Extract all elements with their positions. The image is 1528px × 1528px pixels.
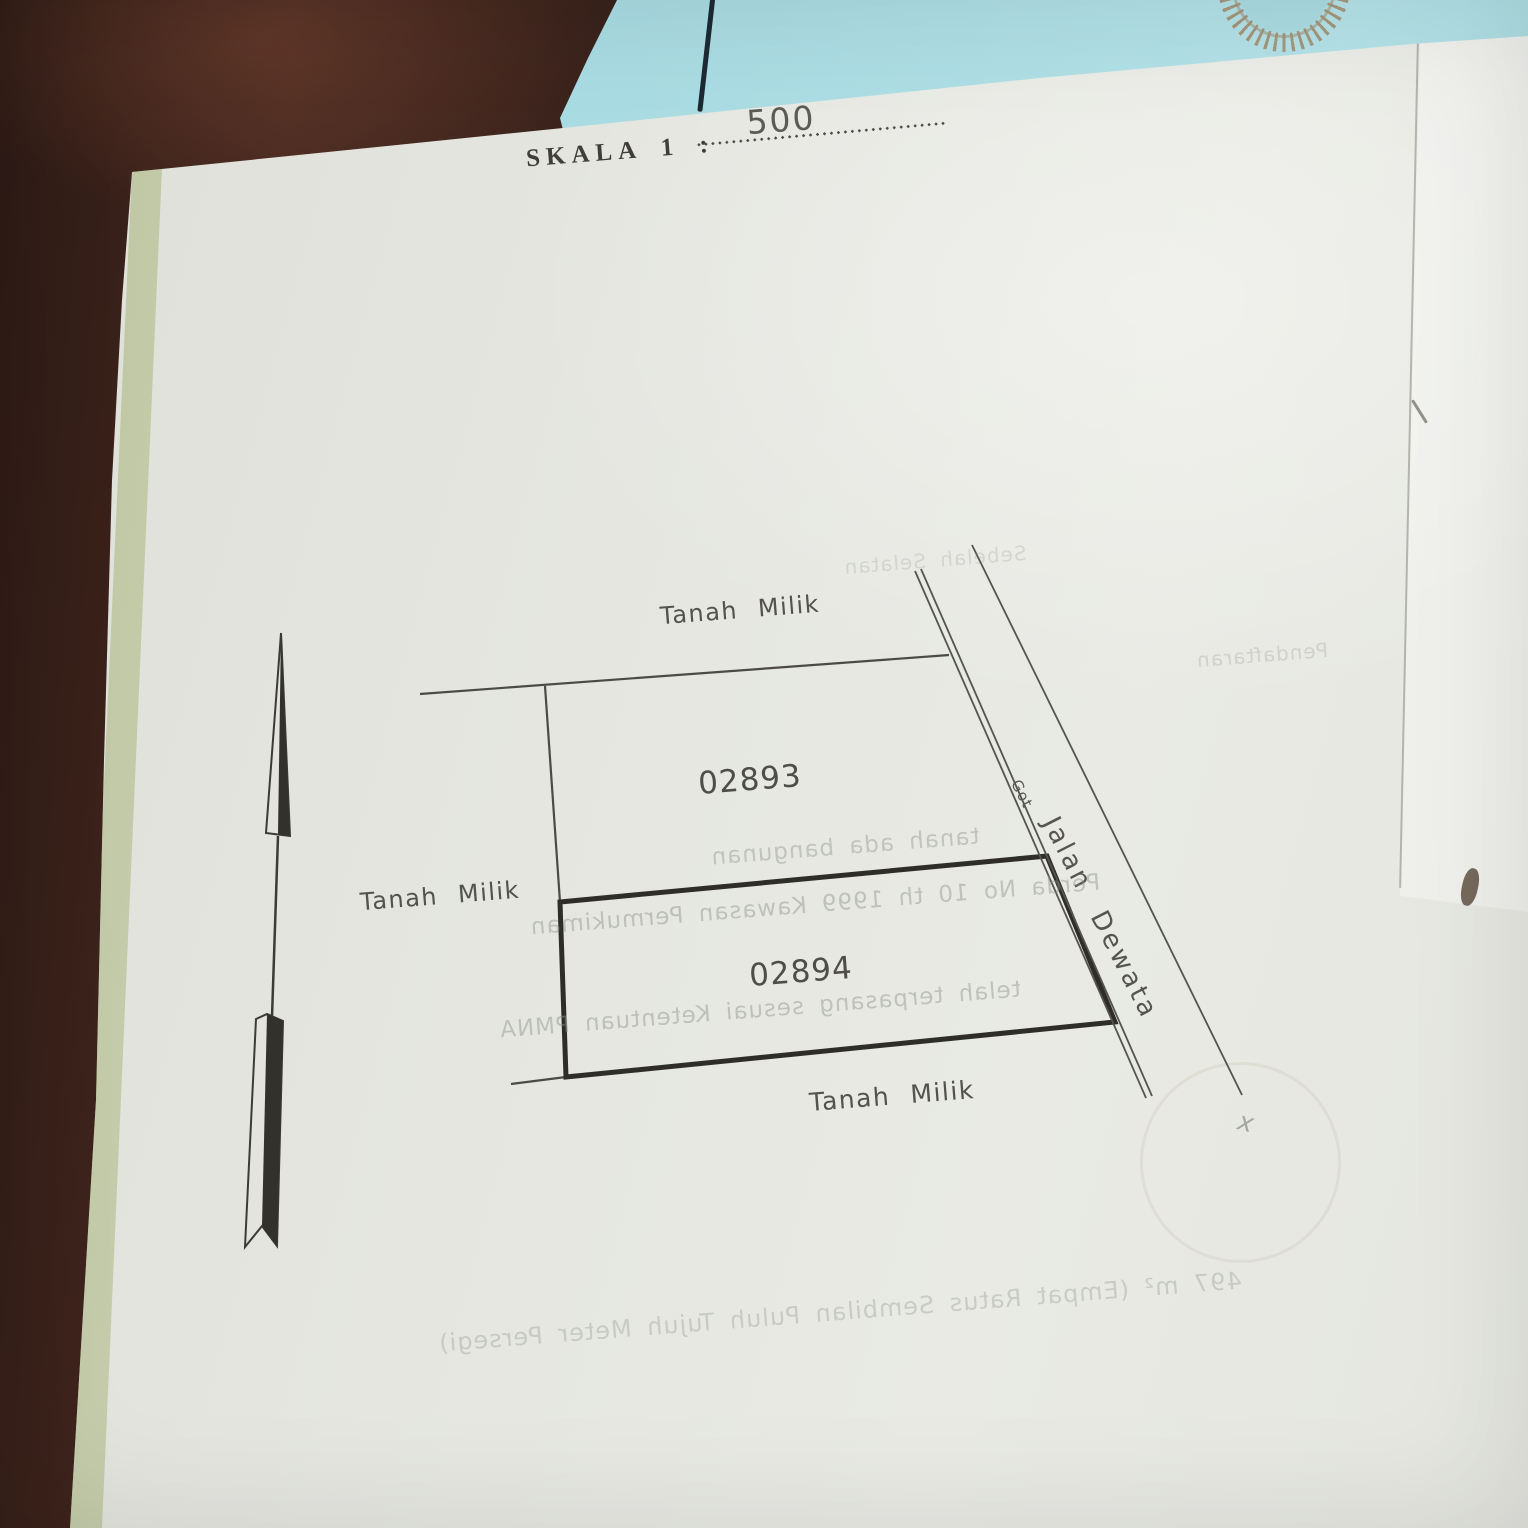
photo-scene: SKALA 1 : 500 <box>0 0 1528 1528</box>
adjacent-land-label-left: Tanah Milik <box>359 876 521 916</box>
ghost-text-line6: Sebelah Selatan <box>843 541 1028 579</box>
document-page: SKALA 1 : 500 <box>0 0 1528 1528</box>
garuda-seal-icon <box>1218 0 1350 52</box>
adjacent-land-label-top: Tanah Milik <box>659 590 821 630</box>
drain-label: Got <box>1007 777 1037 812</box>
parcel-number-02894: 02894 <box>748 950 854 994</box>
faint-seal-watermark <box>1140 1062 1341 1263</box>
road-name-label: Jalan Dewata <box>1036 812 1164 1024</box>
ghost-text-line1: tanah ada bangunan <box>710 823 981 870</box>
north-arrow-icon <box>245 633 290 1247</box>
dark-pen-line <box>697 0 715 112</box>
ghost-text-line5: Pendaftaran <box>1195 638 1329 672</box>
scale-dotted-line <box>695 121 948 147</box>
parcel-number-02893: 02893 <box>697 758 803 802</box>
scale-label: SKALA 1 : <box>525 131 715 174</box>
adjacent-land-label-bottom: Tanah Milik <box>808 1075 976 1117</box>
ghost-text-line4: 497 m² (Empat Ratus Sembilan Puluh Tujuh… <box>437 1266 1243 1357</box>
ghost-text-line2: Perda No 10 th 1999 Kawasan Permukiman <box>529 870 1101 941</box>
road-lines <box>915 545 1242 1098</box>
